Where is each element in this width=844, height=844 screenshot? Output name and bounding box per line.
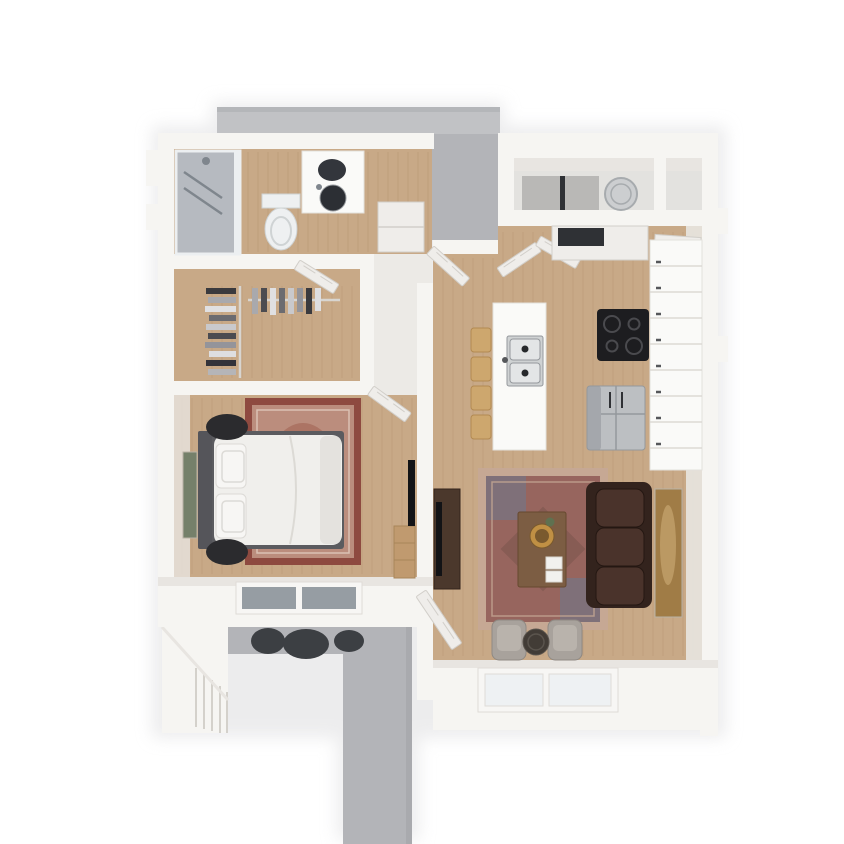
- wall-bottom-right-ledge: [700, 726, 718, 736]
- floor-plan-render: 3D rendered top-down floor plan of a one…: [0, 0, 844, 844]
- wall-right-tab-2: [718, 336, 728, 362]
- shower-glass: [176, 151, 240, 254]
- closet-item-top: [306, 288, 312, 314]
- wall-left-tab-2: [146, 204, 158, 230]
- closet-item-top: [279, 288, 285, 313]
- entry-utility-closet: [514, 158, 702, 210]
- coffee-table-book-1: [546, 557, 562, 569]
- bed-blanket: [320, 436, 341, 544]
- living-window-pane-right: [549, 674, 611, 706]
- closet-item: [205, 342, 236, 348]
- bed-headboard: [198, 431, 212, 549]
- walkway-top-edge: [217, 107, 500, 112]
- sofa-cushion-1: [596, 489, 644, 527]
- toilet-bowl: [265, 208, 297, 250]
- vanity-mirror: [318, 159, 346, 181]
- island-faucet: [502, 357, 508, 363]
- entry-shelf-band: [514, 158, 702, 171]
- closet-item-top: [270, 288, 276, 315]
- wall-living-bottom-face: [433, 660, 718, 668]
- wall-bath-closet: [158, 254, 374, 269]
- pouf-top: [206, 414, 248, 440]
- bedroom-window-pane-left: [242, 587, 296, 609]
- balcony-chair-right: [334, 630, 364, 652]
- closet-item: [206, 360, 236, 366]
- entry-panel-mid: [565, 176, 599, 210]
- pouf-bottom: [206, 539, 248, 565]
- shower-head: [202, 157, 210, 165]
- wall-bedroom-top: [158, 381, 374, 395]
- wall-top-left-block: [158, 133, 434, 149]
- vanity-faucet: [316, 184, 322, 190]
- walkway-right-patch: [432, 134, 498, 240]
- wall-closet-right: [360, 254, 374, 381]
- wall-entry-bottom: [498, 210, 718, 226]
- bedroom-wall-tv: [408, 460, 415, 526]
- wall-entry-top: [498, 133, 718, 158]
- entry-closet-wall: [654, 158, 666, 210]
- closet-item: [206, 288, 236, 294]
- entry-dark-slot: [560, 176, 565, 210]
- bar-stool-4: [471, 415, 491, 439]
- closet-item-top: [288, 288, 294, 314]
- balcony-table: [283, 629, 329, 659]
- coffee-table-tray-inner: [535, 529, 549, 543]
- bar-stool-2: [471, 357, 491, 381]
- closet-item: [208, 333, 236, 339]
- counter-right: [650, 240, 702, 470]
- range-hood-appliance: [558, 228, 604, 246]
- exterior-siding: [162, 627, 228, 733]
- closet-item: [209, 315, 236, 321]
- side-table: [523, 629, 549, 655]
- living-window-pane-left: [485, 674, 543, 706]
- closet-item-top: [315, 288, 321, 311]
- bar-stool-3: [471, 386, 491, 410]
- wall-right-tab-1: [718, 208, 728, 234]
- closet-item-top: [252, 288, 258, 314]
- coffee-table-plant: [546, 518, 555, 527]
- sink-drain-bottom: [522, 370, 529, 377]
- bedroom-window-pane-right: [302, 587, 356, 609]
- fridge-side-face: [587, 386, 601, 450]
- bedroom-artwork: [183, 452, 197, 538]
- concrete-strip: [343, 627, 412, 844]
- balcony-chair-left: [251, 628, 285, 654]
- cooktop: [597, 309, 649, 361]
- closet-item: [209, 351, 236, 357]
- sofa-cushion-3: [596, 567, 644, 605]
- closet-item-top: [261, 288, 267, 312]
- closet-item: [208, 297, 236, 303]
- shower-glass-panel: [234, 151, 241, 254]
- bedroom-dresser: [394, 526, 415, 578]
- concrete-strip-edge: [406, 627, 412, 844]
- living-tv: [436, 502, 442, 576]
- bar-stool-1: [471, 328, 491, 352]
- coffee-table-book-2: [546, 571, 562, 582]
- toilet-tank: [262, 194, 300, 208]
- sofa-cushion-2: [596, 528, 644, 566]
- wall-left: [158, 133, 174, 627]
- vanity-sink: [320, 185, 346, 211]
- wall-kitchen-top-left: [433, 240, 498, 254]
- living-artwork-highlight: [660, 505, 676, 585]
- water-heater: [605, 178, 637, 210]
- closet-item: [206, 324, 236, 330]
- closet-item: [205, 306, 236, 312]
- closet-item-top: [297, 288, 303, 312]
- wall-divider: [417, 283, 433, 700]
- accent-chair-left-seat: [497, 625, 521, 651]
- entry-panel-left: [522, 176, 562, 210]
- closet-item: [208, 369, 236, 375]
- wall-left-tab-1: [146, 150, 158, 186]
- sink-drain-top: [522, 346, 529, 353]
- accent-chair-right-seat: [553, 625, 577, 651]
